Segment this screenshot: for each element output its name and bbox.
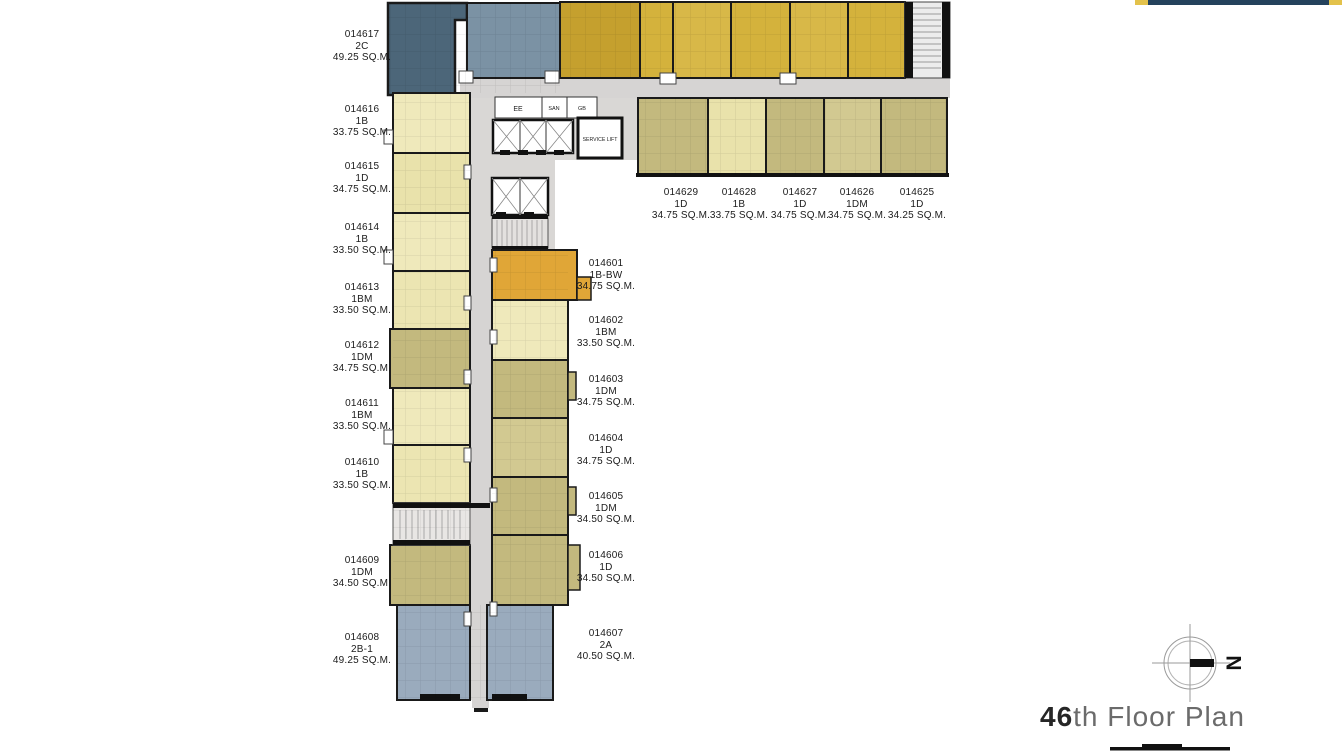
unit-size: 34.75 SQ.M. <box>317 184 407 196</box>
unit-label: 0146281B33.75 SQ.M. <box>707 187 771 222</box>
unit-id: 014602 <box>564 315 648 327</box>
unit-type: 1D <box>564 562 648 574</box>
unit-id: 014612 <box>317 340 407 352</box>
unit-id: 014617 <box>317 29 407 41</box>
unit-type: 1D <box>564 445 648 457</box>
unit-type: 1B <box>317 234 407 246</box>
unit-size: 40.50 SQ.M. <box>564 651 648 663</box>
unit-size: 33.50 SQ.M. <box>317 305 407 317</box>
unit-type: 1B <box>317 116 407 128</box>
unit-id: 014627 <box>768 187 832 199</box>
unit-type: 1BM <box>564 327 648 339</box>
unit-type: 1DM <box>317 352 407 364</box>
unit-label: 0146091DM34.50 SQ.M. <box>317 555 407 590</box>
unit-type: 2A <box>564 640 648 652</box>
unit-label: 0146031DM34.75 SQ.M. <box>564 374 648 409</box>
unit-size: 34.75 SQ.M. <box>317 363 407 375</box>
unit-id: 014610 <box>317 457 407 469</box>
unit-size: 49.25 SQ.M. <box>317 655 407 667</box>
plan-title: 46th Floor Plan <box>1040 701 1340 733</box>
lift-bank2-icon <box>492 178 548 217</box>
unit-size: 33.75 SQ.M. <box>707 210 771 222</box>
unit-id: 014608 <box>317 632 407 644</box>
unit-type: 1DM <box>564 503 648 515</box>
unit-label: 0146111BM33.50 SQ.M. <box>317 398 407 433</box>
unit-label: 0146072A40.50 SQ.M. <box>564 628 648 663</box>
unit-size: 34.75 SQ.M. <box>564 397 648 409</box>
unit-id: 014626 <box>825 187 889 199</box>
unit-size: 34.75 SQ.M. <box>564 281 648 293</box>
unit-size: 34.50 SQ.M. <box>564 573 648 585</box>
unit-type: 1D <box>885 199 949 211</box>
core-stairs-icon <box>492 215 548 250</box>
unit-label: 0146101B33.50 SQ.M. <box>317 457 407 492</box>
unit-id: 014603 <box>564 374 648 386</box>
service-lift: SERVICE LIFT <box>578 118 622 158</box>
unit-type: 1D <box>768 199 832 211</box>
floor-plan-svg: EE SAN GB SERVICE LIFT <box>0 0 1342 754</box>
room-san-label: SAN <box>548 106 559 112</box>
unit-size: 33.50 SQ.M. <box>317 245 407 257</box>
unit-label: 0146251D34.25 SQ.M. <box>885 187 949 222</box>
service-lift-label: SERVICE LIFT <box>583 137 619 143</box>
unit-label: 0146061D34.50 SQ.M. <box>564 550 648 585</box>
lift-bank-icon <box>493 120 573 155</box>
unit-type: 1D <box>317 173 407 185</box>
unit-size: 34.75 SQ.M. <box>649 210 713 222</box>
scale-bar-icon <box>1110 744 1230 751</box>
unit-label: 0146172C49.25 SQ.M. <box>317 29 407 64</box>
unit-type: 1B <box>707 199 771 211</box>
unit-size: 34.25 SQ.M. <box>885 210 949 222</box>
unit-id: 014616 <box>317 104 407 116</box>
unit-id: 014611 <box>317 398 407 410</box>
unit-id: 014615 <box>317 161 407 173</box>
compass-north-label: N <box>1222 655 1245 670</box>
unit-id: 014604 <box>564 433 648 445</box>
unit-size: 33.50 SQ.M. <box>317 421 407 433</box>
unit-type: 1B <box>317 469 407 481</box>
unit-type: 1DM <box>564 386 648 398</box>
unit-type: 1DM <box>317 567 407 579</box>
unit-label: 0146021BM33.50 SQ.M. <box>564 315 648 350</box>
unit-type: 2C <box>317 41 407 53</box>
unit-label: 0146131BM33.50 SQ.M. <box>317 282 407 317</box>
unit-type: 1BM <box>317 410 407 422</box>
unit-label: 0146151D34.75 SQ.M. <box>317 161 407 196</box>
unit-id: 014629 <box>649 187 713 199</box>
unit-size: 33.50 SQ.M. <box>564 338 648 350</box>
unit-id: 014605 <box>564 491 648 503</box>
unit-id: 014628 <box>707 187 771 199</box>
unit-size: 34.50 SQ.M. <box>564 514 648 526</box>
unit-id: 014606 <box>564 550 648 562</box>
plan-title-text: th Floor Plan <box>1073 701 1245 732</box>
unit-size: 34.75 SQ.M. <box>825 210 889 222</box>
unit-size: 49.25 SQ.M. <box>317 52 407 64</box>
unit-size: 34.75 SQ.M. <box>768 210 832 222</box>
unit-id: 014607 <box>564 628 648 640</box>
unit-type: 1B-BW <box>564 270 648 282</box>
stairwell-right <box>905 2 950 78</box>
unit-size: 34.75 SQ.M. <box>564 456 648 468</box>
unit-label: 0146161B33.75 SQ.M. <box>317 104 407 139</box>
unit-id: 014609 <box>317 555 407 567</box>
compass: N <box>1152 624 1245 702</box>
floor-plan-page: EE SAN GB SERVICE LIFT <box>0 0 1342 754</box>
unit-type: 1BM <box>317 294 407 306</box>
unit-type: 2B-1 <box>317 644 407 656</box>
unit-size: 34.50 SQ.M. <box>317 578 407 590</box>
unit-label: 0146261DM34.75 SQ.M. <box>825 187 889 222</box>
unit-type: 1DM <box>825 199 889 211</box>
room-ee-label: EE <box>513 106 523 113</box>
unit-id: 014601 <box>564 258 648 270</box>
unit-label: 0146291D34.75 SQ.M. <box>649 187 713 222</box>
unit-size: 33.75 SQ.M. <box>317 127 407 139</box>
unit-label: 0146011B-BW34.75 SQ.M. <box>564 258 648 293</box>
unit-type: 1D <box>649 199 713 211</box>
room-gb-label: GB <box>578 106 586 112</box>
unit-label: 0146141B33.50 SQ.M. <box>317 222 407 257</box>
unit-size: 33.50 SQ.M. <box>317 480 407 492</box>
unit-label: 0146082B-149.25 SQ.M. <box>317 632 407 667</box>
unit-label: 0146121DM34.75 SQ.M. <box>317 340 407 375</box>
unit-label: 0146041D34.75 SQ.M. <box>564 433 648 468</box>
compass-needle-icon <box>1190 659 1214 667</box>
unit-id: 014613 <box>317 282 407 294</box>
unit-label: 0146051DM34.50 SQ.M. <box>564 491 648 526</box>
unit-id: 014614 <box>317 222 407 234</box>
unit-label: 0146271D34.75 SQ.M. <box>768 187 832 222</box>
deco-topbar <box>1135 0 1342 5</box>
plan-title-floor-number: 46 <box>1040 701 1073 732</box>
unit-id: 014625 <box>885 187 949 199</box>
